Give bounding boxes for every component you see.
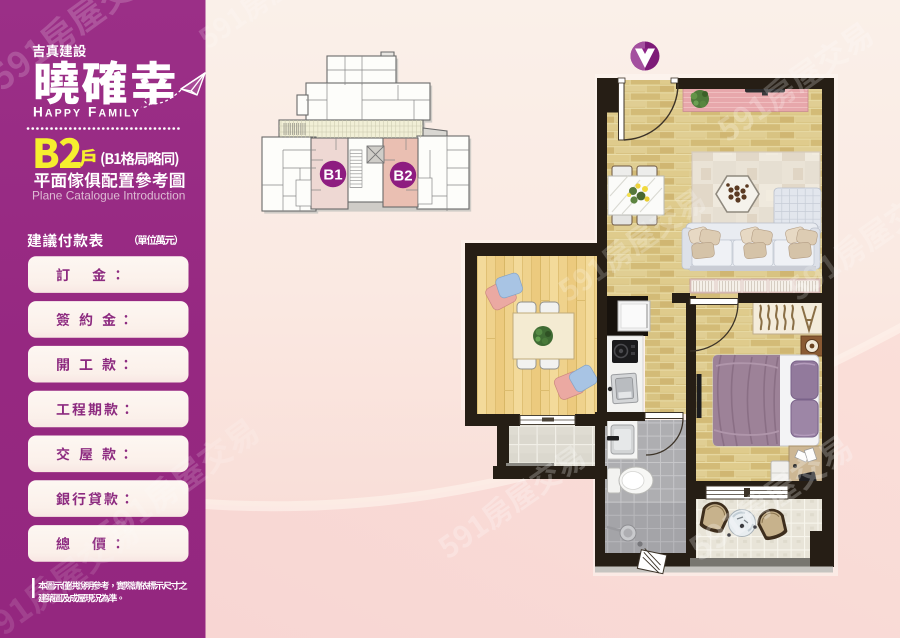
svg-text:B2: B2 — [393, 168, 412, 185]
svg-text:B1: B1 — [323, 167, 342, 184]
svg-text:Plane Catalogue Introduction: Plane Catalogue Introduction — [32, 189, 185, 203]
svg-text:HAPPY FAMILY: HAPPY FAMILY — [33, 105, 141, 120]
